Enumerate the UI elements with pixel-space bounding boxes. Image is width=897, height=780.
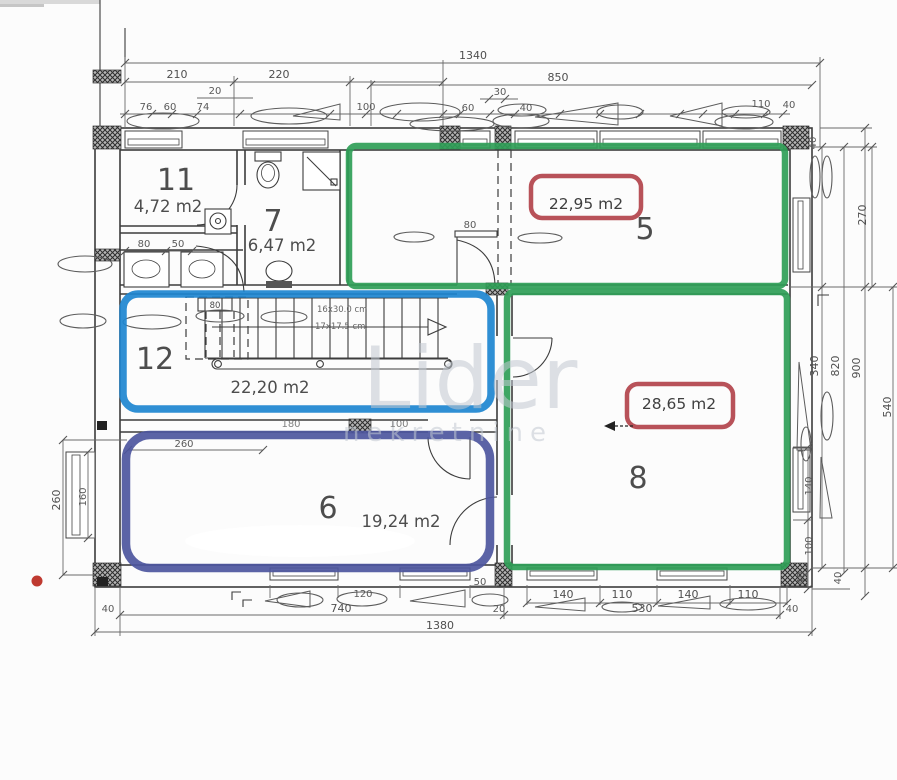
dim-top-850: 850 — [548, 71, 569, 84]
dim-top-100: 100 — [356, 102, 375, 113]
dim-top-76: 76 — [140, 102, 153, 113]
watermark-line1: Lider — [363, 329, 578, 429]
dim-bottom-40r: 40 — [786, 604, 799, 615]
dim-bottom-120: 120 — [353, 589, 372, 600]
dim-right-340: 340 — [808, 356, 821, 377]
room-8-area-value: 28,65 m2 — [642, 395, 716, 413]
dim-top-40c: 40 — [783, 100, 796, 111]
dim-bottom-50: 50 — [474, 577, 487, 588]
dim-bottom-140b: 140 — [678, 588, 699, 601]
dim-right-100: 100 — [804, 536, 815, 555]
room-12-area: 22,20 m2 — [230, 378, 309, 397]
dim-bottom-530: 530 — [632, 602, 653, 615]
room-6-number: 6 — [318, 491, 337, 526]
room-11-number: 11 — [157, 163, 195, 198]
basin-left-icon — [124, 252, 169, 287]
dim-door-80: 80 — [464, 220, 477, 231]
room-6-area: 19,24 m2 — [361, 512, 440, 531]
dim-top-74: 74 — [197, 102, 210, 113]
dim-mid-100: 100 — [389, 419, 408, 430]
sink-base — [266, 281, 292, 288]
watermark-line2: nekretnine — [343, 418, 553, 448]
floor-plan-canvas: Lider nekretnine 11 4,72 m2 7 6,47 m2 5 … — [0, 0, 897, 780]
stair-note-1: 16x30.0 cm — [317, 305, 367, 315]
dim-room6-260: 260 — [174, 439, 193, 450]
closet-width-label: 80 — [210, 301, 221, 311]
dim-top-60: 60 — [164, 102, 177, 113]
scan-artifacts — [0, 0, 125, 126]
toilet-icon — [257, 162, 279, 188]
red-dot-marker — [32, 576, 43, 587]
dim-left-260: 260 — [50, 490, 63, 511]
dim-bottom-20: 20 — [493, 604, 506, 615]
dim-right-900: 900 — [850, 358, 863, 379]
room-8-number: 8 — [628, 461, 647, 496]
dim-bottom-40l: 40 — [102, 604, 115, 615]
dim-top-20: 20 — [209, 86, 222, 97]
dim-bottom-740: 740 — [331, 602, 352, 615]
dim-top-40b: 40 — [520, 103, 533, 114]
dim-bottom-overall: 1380 — [426, 619, 454, 632]
dim-top-110: 110 — [751, 99, 770, 110]
room-12-number: 12 — [136, 342, 174, 377]
toilet-tank-icon — [255, 152, 281, 161]
room-11-area: 4,72 m2 — [134, 197, 203, 216]
basin-right-icon — [181, 252, 223, 287]
room-7-number: 7 — [263, 204, 282, 239]
room-7-area: 6,47 m2 — [248, 236, 317, 255]
dim-top-210: 210 — [167, 68, 188, 81]
dim-top-30: 30 — [494, 87, 507, 98]
sink-icon — [266, 261, 292, 281]
dim-mid-180: 180 — [281, 419, 300, 430]
dim-right-540: 540 — [881, 397, 894, 418]
dim-left-160: 160 — [78, 487, 89, 506]
dim-top-60b: 60 — [462, 103, 475, 114]
dim-right-40w: 40 — [808, 137, 819, 150]
dim-top-overall: 1340 — [459, 49, 487, 62]
room-5-area-value: 22,95 m2 — [549, 195, 623, 213]
dim-right-140: 140 — [804, 476, 815, 495]
dim-top-220: 220 — [269, 68, 290, 81]
stair-note-2: 17x17.5 cm — [315, 322, 365, 332]
dim-left-80: 80 — [138, 239, 151, 250]
dim-bottom-110b: 110 — [738, 588, 759, 601]
dimension-labels-bottom: 50 120 140 110 140 110 740 530 20 40 40 … — [102, 577, 799, 632]
dim-right-820: 820 — [829, 356, 842, 377]
dim-right-270: 270 — [856, 205, 869, 226]
dim-left-50: 50 — [172, 239, 185, 250]
dim-bottom-140a: 140 — [553, 588, 574, 601]
dim-right-40a: 40 — [796, 572, 807, 585]
dimension-labels-left: 260 160 80 50 180 100 260 — [50, 239, 409, 511]
dim-bottom-110a: 110 — [612, 588, 633, 601]
floor-plan-drawing: Lider nekretnine 11 4,72 m2 7 6,47 m2 5 … — [0, 0, 897, 780]
dim-right-40b: 40 — [833, 572, 844, 585]
